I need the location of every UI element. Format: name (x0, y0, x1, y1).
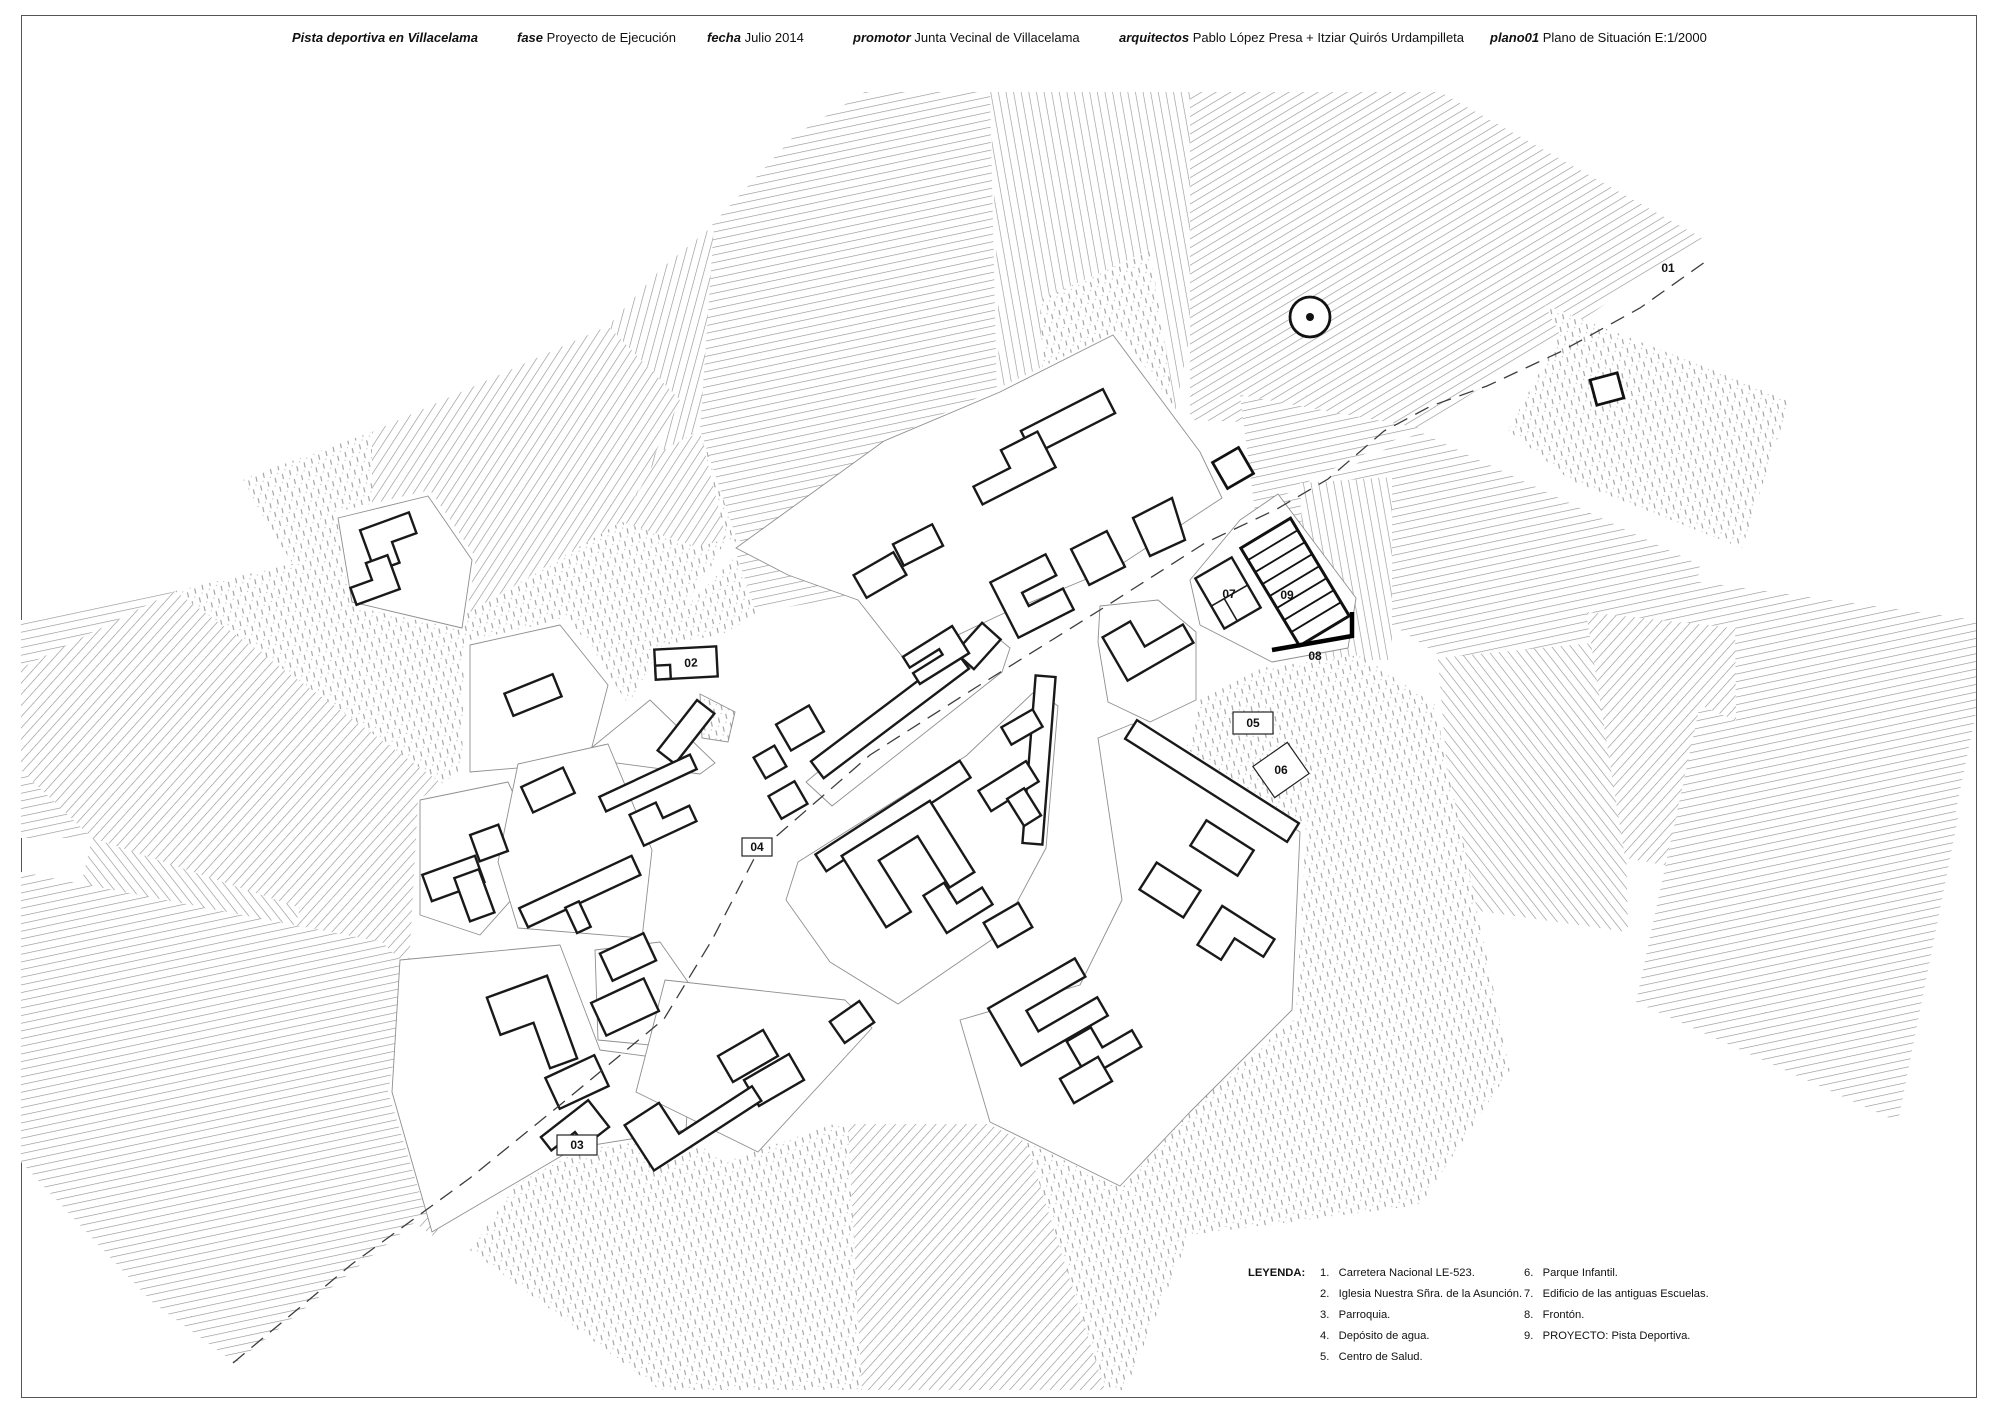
svg-text:07: 07 (1222, 587, 1236, 601)
svg-text:08: 08 (1308, 649, 1322, 663)
svg-text:09: 09 (1280, 588, 1294, 602)
svg-text:05: 05 (1246, 716, 1260, 730)
svg-text:06: 06 (1274, 763, 1288, 777)
svg-text:03: 03 (570, 1138, 584, 1152)
svg-text:02: 02 (684, 655, 698, 670)
svg-text:01: 01 (1661, 261, 1675, 275)
svg-text:04: 04 (750, 840, 764, 854)
